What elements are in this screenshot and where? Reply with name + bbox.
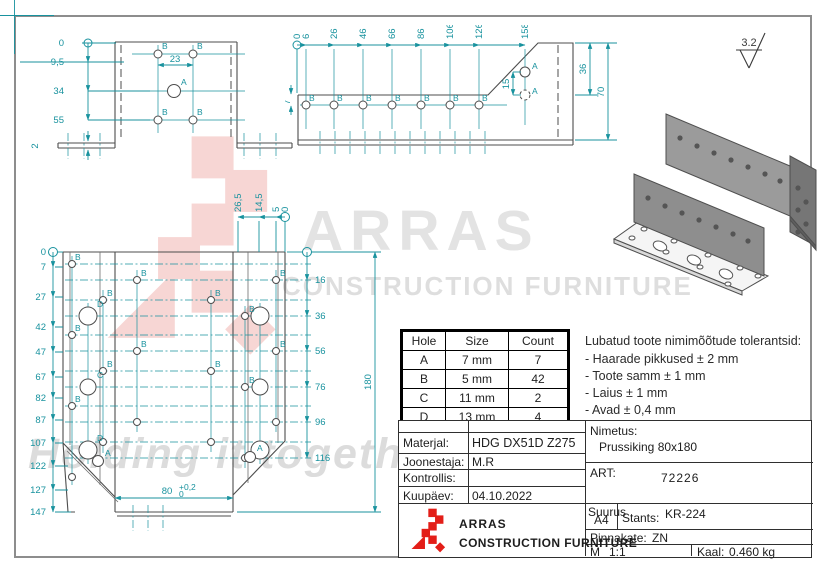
svg-text:82: 82 (35, 393, 46, 404)
svg-text:D: D (97, 433, 103, 443)
svg-text:B: B (141, 268, 147, 278)
svg-text:147: 147 (30, 507, 46, 518)
plan-view: B B B B B D D C A A B B B B B B B B (15, 185, 400, 570)
svg-text:B: B (395, 93, 401, 103)
svg-text:16: 16 (315, 275, 326, 286)
tolerance-title: Lubatud toote nimimõõtude tolerantsid: (585, 333, 813, 350)
material-label: Materjal: (403, 436, 449, 450)
svg-text:0: 0 (280, 207, 291, 212)
table-row: C11 mm2 (402, 389, 569, 408)
checker-label: Kontrollis: (403, 471, 456, 485)
art-value: 72226 (661, 471, 699, 485)
svg-text:127: 127 (30, 485, 46, 496)
table-row: A7 mm7 (402, 351, 569, 370)
svg-text:23: 23 (170, 54, 181, 65)
front-view-dimensions: 0 9,5 34 55 2 23 B B A B B (20, 38, 203, 160)
hole-table-header: Hole Size Count (402, 331, 569, 351)
svg-text:46: 46 (358, 28, 369, 39)
svg-text:B: B (107, 288, 113, 298)
weight-label: Kaal: (697, 545, 724, 559)
svg-text:C: C (97, 370, 103, 380)
front-view: 0 9,5 34 55 2 23 B B A B B (20, 25, 305, 180)
svg-text:B: B (453, 93, 459, 103)
table-row: B5 mm42 (402, 370, 569, 389)
svg-text:B: B (337, 93, 343, 103)
svg-text:B: B (75, 323, 81, 333)
svg-text:27: 27 (35, 292, 46, 303)
date-label: Kuupäev: (403, 489, 454, 503)
drafter-value: M.R (472, 455, 494, 469)
svg-text:67: 67 (35, 372, 46, 383)
svg-text:3.2: 3.2 (741, 37, 756, 49)
coating-label: Pinnakate: (590, 531, 647, 545)
svg-text:B: B (424, 93, 430, 103)
svg-text:B: B (75, 394, 81, 404)
svg-text:B: B (215, 359, 221, 369)
weight-value: 0.460 kg (729, 545, 775, 559)
svg-text:B: B (309, 93, 315, 103)
name-value: Prussiking 80x180 (599, 440, 697, 454)
die-label: Stants: (622, 511, 659, 525)
svg-text:26,5: 26,5 (233, 194, 244, 213)
svg-text:70: 70 (596, 87, 607, 98)
svg-text:0: 0 (179, 489, 184, 499)
brand-name: ARRAS (459, 515, 507, 533)
svg-text:D: D (97, 299, 103, 309)
tolerance-item: - Haarade pikkused ± 2 mm (585, 351, 813, 368)
svg-text:7: 7 (285, 99, 293, 104)
svg-text:36: 36 (315, 311, 326, 322)
svg-text:66: 66 (387, 28, 398, 39)
size-col-header: Size (446, 331, 509, 351)
svg-text:B: B (366, 93, 372, 103)
svg-text:42: 42 (35, 322, 46, 333)
plan-view-dimensions: 0 7 27 42 47 67 82 87 107 122 127 147 26… (30, 194, 381, 519)
svg-text:A: A (532, 61, 538, 71)
drafter-label: Joonestaja: (403, 455, 464, 469)
side-view: 0 6 26 46 66 86 106 126 158 7 15 36 70 B… (285, 25, 630, 167)
scale-value: 1:1 (609, 545, 626, 559)
svg-text:126: 126 (474, 25, 485, 39)
svg-text:A: A (181, 77, 187, 87)
svg-text:B: B (162, 41, 168, 51)
svg-text:A: A (532, 86, 538, 96)
tolerance-item: - Avad ± 0,4 mm (585, 402, 813, 419)
tolerance-note: Lubatud toote nimimõõtude tolerantsid: -… (585, 333, 813, 419)
surface-finish-symbol: 3.2 (728, 30, 790, 82)
arras-logo (411, 507, 449, 554)
svg-text:A: A (257, 443, 263, 453)
isometric-view (608, 98, 820, 303)
svg-text:56: 56 (315, 346, 326, 357)
svg-text:180: 180 (363, 374, 374, 390)
svg-text:96: 96 (315, 417, 326, 428)
title-block: Materjal: HDG DX51D Z275 Joonestaja: M.R… (398, 420, 812, 558)
coating-value: ZN (652, 531, 668, 545)
svg-text:B: B (162, 107, 168, 117)
name-label: Nimetus: (590, 424, 637, 438)
svg-text:B: B (280, 268, 286, 278)
svg-text:0: 0 (59, 38, 64, 49)
svg-text:B: B (107, 359, 113, 369)
svg-text:9,5: 9,5 (51, 57, 64, 68)
svg-text:B: B (249, 304, 255, 314)
svg-text:86: 86 (416, 28, 427, 39)
hole-table: Hole Size Count A7 mm7 B5 mm42 C11 mm2 D… (400, 329, 570, 429)
size-value: A4 (594, 513, 609, 527)
hole-col-header: Hole (402, 331, 446, 351)
svg-text:14,5: 14,5 (254, 194, 265, 213)
svg-text:122: 122 (30, 461, 46, 472)
svg-text:76: 76 (315, 382, 326, 393)
svg-text:6: 6 (301, 34, 312, 39)
drawing-sheet: ARRAS CONSTRUCTION FURNITURE Holding it … (0, 0, 826, 573)
side-view-dimensions: 0 6 26 46 66 86 106 126 158 7 15 36 70 B… (285, 25, 617, 140)
svg-text:87: 87 (35, 415, 46, 426)
svg-text:A: A (105, 448, 111, 458)
svg-text:158: 158 (520, 25, 531, 39)
svg-text:B: B (249, 375, 255, 385)
svg-text:36: 36 (578, 64, 589, 75)
svg-text:2: 2 (30, 143, 41, 148)
svg-text:15: 15 (501, 79, 512, 90)
svg-text:B: B (482, 93, 488, 103)
tolerance-item: - Laius ± 1 mm (585, 385, 813, 402)
svg-text:B: B (215, 288, 221, 298)
plan-view-hole-labels: B B B B B D D C A A B B B B B B B B (75, 252, 286, 458)
tolerance-item: - Toote samm ± 1 mm (585, 368, 813, 385)
svg-text:0: 0 (41, 247, 46, 258)
svg-text:55: 55 (53, 115, 64, 126)
svg-text:106: 106 (445, 25, 456, 39)
svg-text:B: B (197, 41, 203, 51)
svg-text:107: 107 (30, 438, 46, 449)
svg-text:34: 34 (53, 86, 64, 97)
count-col-header: Count (509, 331, 569, 351)
svg-text:7: 7 (41, 262, 46, 273)
svg-text:116: 116 (315, 453, 330, 464)
scale-label: M (590, 545, 600, 559)
svg-text:26: 26 (329, 28, 340, 39)
svg-text:80: 80 (162, 486, 173, 497)
die-value: KR-224 (665, 507, 706, 521)
svg-text:47: 47 (35, 347, 46, 358)
svg-text:B: B (280, 339, 286, 349)
svg-text:B: B (75, 252, 81, 262)
date-value: 04.10.2022 (472, 489, 532, 503)
svg-text:B: B (197, 107, 203, 117)
svg-text:B: B (141, 339, 147, 349)
art-label: ART: (590, 466, 616, 480)
material-value: HDG DX51D Z275 (472, 436, 576, 450)
